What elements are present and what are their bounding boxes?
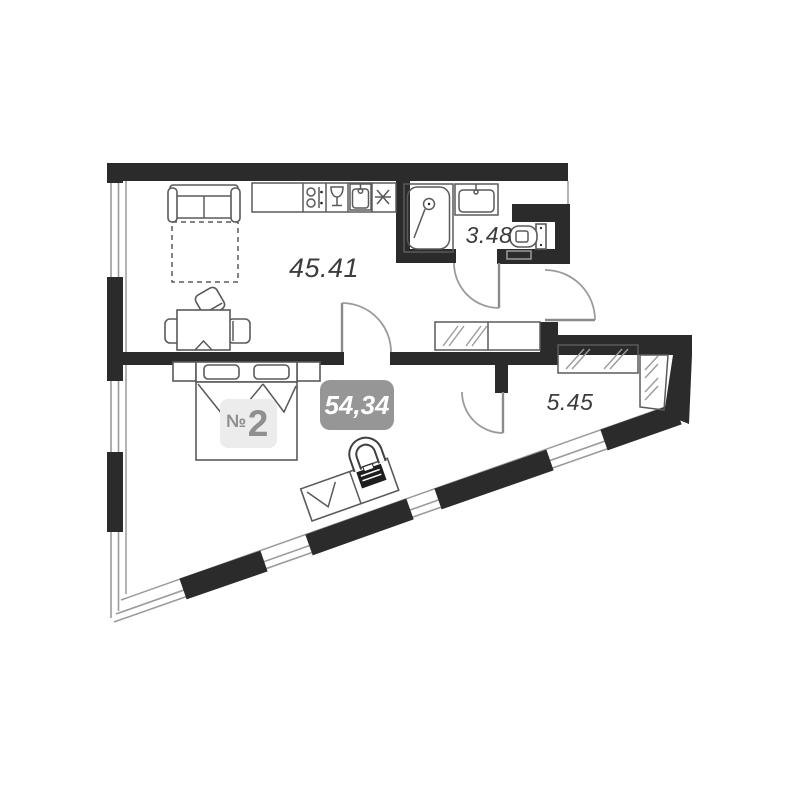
wall-top xyxy=(107,163,568,181)
tank-bolt xyxy=(540,227,542,229)
door-swing-arc xyxy=(462,392,503,433)
wall-diagonal-band-3 xyxy=(438,460,550,499)
knob xyxy=(320,191,323,194)
stove-icon xyxy=(307,187,323,208)
door-entrance xyxy=(545,270,595,320)
toilet-bowl xyxy=(510,226,537,247)
sofa-arm-left xyxy=(168,188,177,222)
tub-basin xyxy=(408,187,450,249)
basin-tap-base xyxy=(474,190,478,194)
wall-toilet-niche-right xyxy=(555,222,570,254)
counter-outline xyxy=(252,183,396,212)
shower-center xyxy=(428,203,430,205)
kitchen-sink-icon xyxy=(350,184,371,210)
hall-cabinet-icon xyxy=(435,322,540,350)
total-area-badge: 54,34 xyxy=(320,380,394,430)
total-area-value: 54,34 xyxy=(324,390,390,420)
hatch-line xyxy=(645,378,658,392)
table-top xyxy=(177,310,230,350)
pillow-right xyxy=(254,365,289,379)
door-bathroom xyxy=(454,263,499,308)
washbasin-icon xyxy=(455,184,498,215)
hatch-line xyxy=(645,364,658,378)
hatch-line xyxy=(645,356,658,370)
sofa-icon xyxy=(168,185,240,282)
bathtub-icon xyxy=(404,184,453,252)
wineglass-icon xyxy=(331,187,343,206)
burner xyxy=(307,188,315,196)
nightstand-left xyxy=(173,362,196,381)
tub-outline xyxy=(404,184,453,252)
room-label-dressing: 5.45 xyxy=(547,389,594,415)
sink-basin xyxy=(353,189,369,208)
wall-bath-bottom-left xyxy=(396,249,456,263)
door-living-bedroom xyxy=(342,303,391,352)
tank-bolt xyxy=(540,244,542,246)
apartment-number-badge: № 2 xyxy=(220,399,277,448)
hatch-line xyxy=(645,386,658,400)
sofa-back xyxy=(170,185,238,196)
wall-corner-piece xyxy=(540,322,558,365)
knob xyxy=(320,202,323,205)
door-swing-arc xyxy=(342,303,391,352)
chair-right xyxy=(228,319,250,343)
door-bedroom-dressing xyxy=(462,392,503,433)
glass-bowl xyxy=(331,187,343,197)
wardrobe-right-icon xyxy=(640,355,668,410)
wall-left-top-corner xyxy=(107,163,123,183)
apartment-number-value: 2 xyxy=(248,403,269,444)
wall-left-pier-2 xyxy=(107,452,123,532)
nightstand-right xyxy=(297,362,320,381)
wall-interior-right xyxy=(390,352,540,365)
shower-hose xyxy=(414,209,425,238)
kitchen-counter xyxy=(252,183,396,212)
wall-diagonal-band-4 xyxy=(604,414,678,440)
sofa-foldout-dashed xyxy=(172,222,238,282)
door-swing-arc xyxy=(454,263,499,308)
door-swing-arc xyxy=(545,270,595,320)
room-label-bathroom: 3.48 xyxy=(466,222,513,248)
sink-tap-base xyxy=(358,189,362,193)
wall-hall-stub xyxy=(495,365,508,393)
wall-left-pier-1 xyxy=(107,277,123,381)
floor-plan: № 2 54,34 45.41 3.48 5.45 xyxy=(0,0,800,800)
dining-table-icon xyxy=(165,286,250,350)
wall-diagonal-band-1 xyxy=(183,561,264,589)
sofa-arm-right xyxy=(231,188,240,222)
apartment-number-prefix: № xyxy=(226,411,246,431)
wall-toilet-niche-top xyxy=(512,204,570,222)
pillow-left xyxy=(204,365,239,379)
toilet-icon xyxy=(510,224,546,249)
room-label-living: 45.41 xyxy=(289,253,359,283)
floor-plan-canvas: № 2 54,34 45.41 3.48 5.45 xyxy=(0,0,800,800)
burner xyxy=(307,199,315,207)
chair xyxy=(228,319,250,343)
snowflake-icon xyxy=(375,190,391,204)
